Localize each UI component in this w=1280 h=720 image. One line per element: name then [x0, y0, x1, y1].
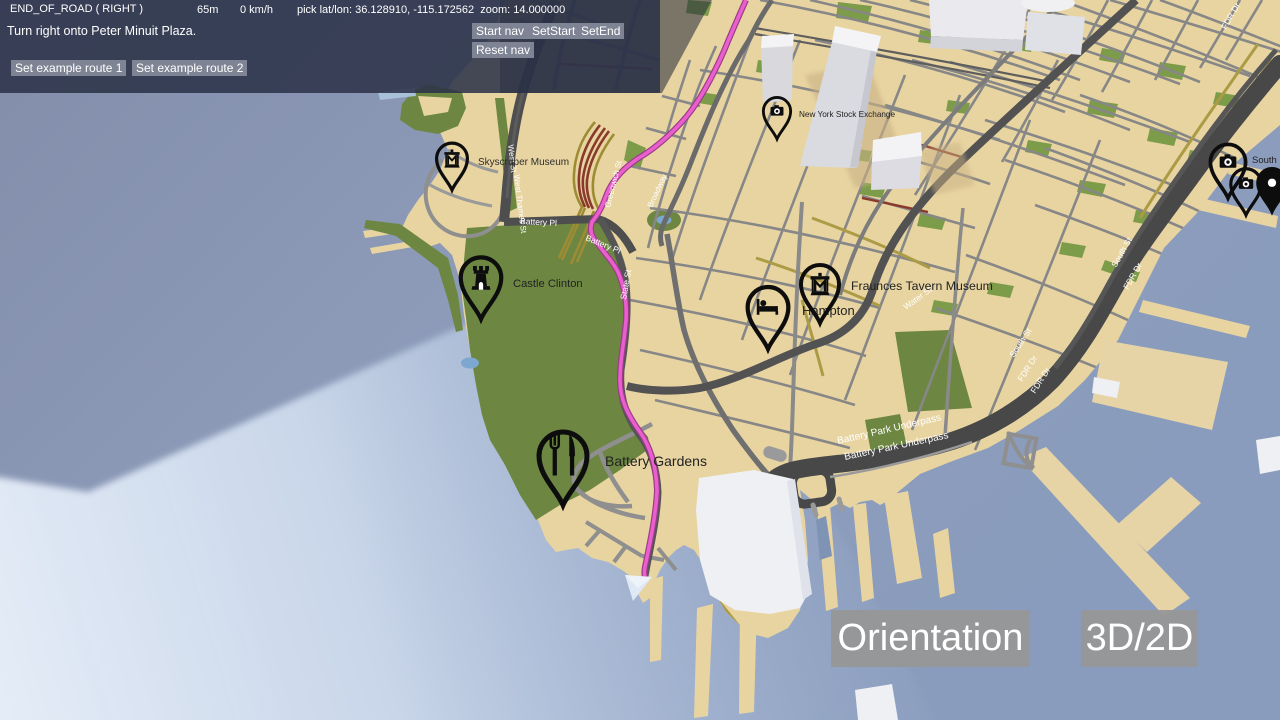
svg-text:New York Stock Exchange: New York Stock Exchange — [799, 110, 895, 119]
svg-text:Skyscraper Museum: Skyscraper Museum — [478, 157, 569, 168]
svg-text:South S: South S — [1252, 155, 1280, 166]
svg-text:Battery Pl: Battery Pl — [520, 216, 557, 228]
svg-text:Battery Gardens: Battery Gardens — [605, 453, 707, 469]
svg-text:Fraunces Tavern Museum: Fraunces Tavern Museum — [851, 279, 993, 293]
svg-text:Castle Clinton: Castle Clinton — [513, 278, 583, 290]
